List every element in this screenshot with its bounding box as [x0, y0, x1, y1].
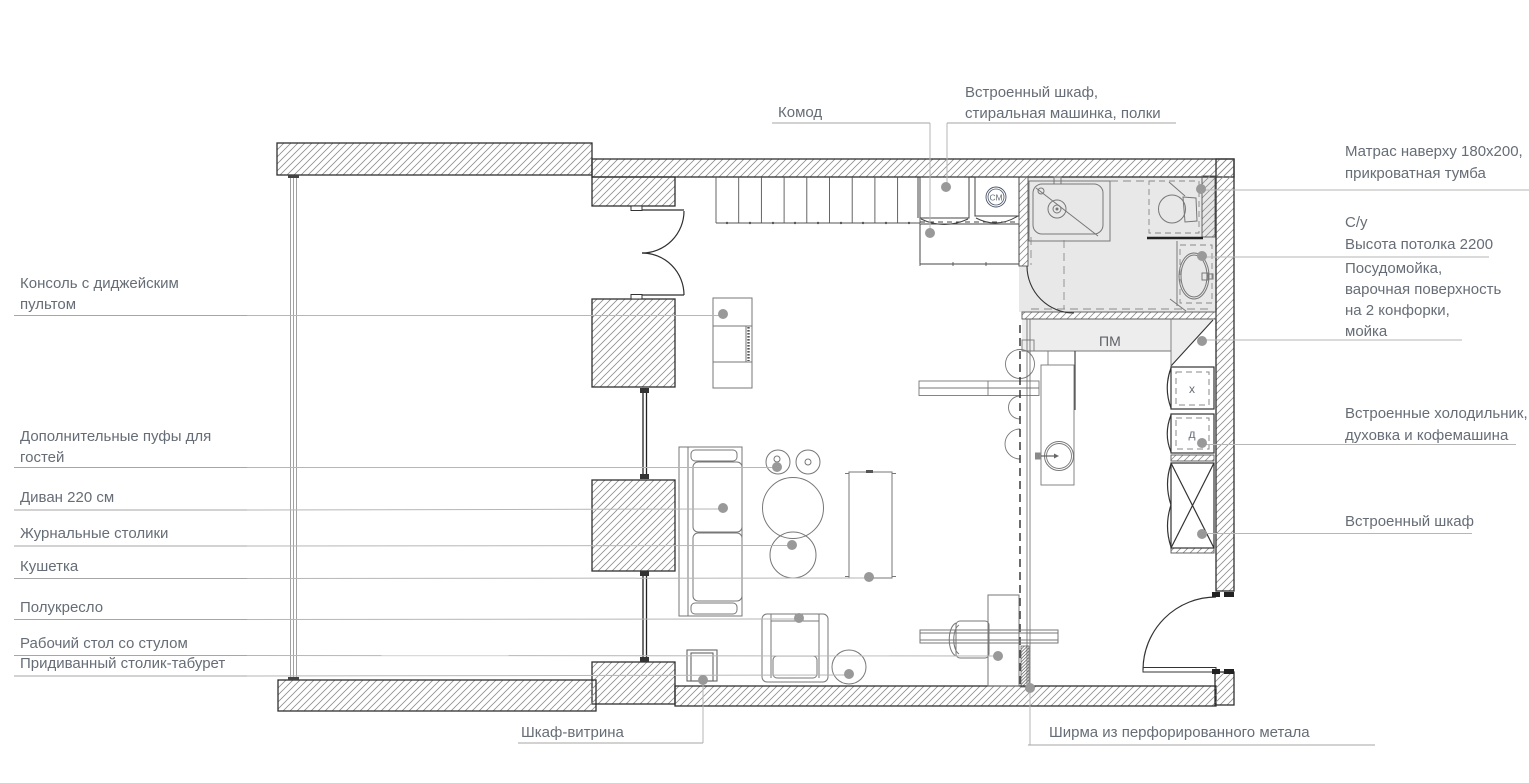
svg-text:прикроватная тумба: прикроватная тумба — [1345, 165, 1486, 182]
svg-text:Кушетка: Кушетка — [20, 558, 79, 575]
svg-text:Встроенные холодильник,: Встроенные холодильник, — [1345, 405, 1528, 422]
svg-text:Рабочий стол со стулом: Рабочий стол со стулом — [20, 635, 188, 652]
svg-text:Дополнительные пуфы для: Дополнительные пуфы для — [20, 428, 211, 445]
svg-text:Встроенный шкаф,: Встроенный шкаф, — [965, 84, 1098, 101]
svg-text:Полукресло: Полукресло — [20, 599, 103, 616]
svg-text:Встроенный шкаф: Встроенный шкаф — [1345, 513, 1474, 530]
svg-text:Журнальные столики: Журнальные столики — [20, 525, 168, 542]
svg-text:Комод: Комод — [778, 104, 822, 121]
svg-text:Ширма из перфорированного мета: Ширма из перфорированного метала — [1049, 724, 1310, 741]
svg-text:Консоль с диджейским: Консоль с диджейским — [20, 275, 179, 292]
svg-text:ПМ: ПМ — [1099, 333, 1121, 349]
svg-text:стиральная машинка, полки: стиральная машинка, полки — [965, 105, 1161, 122]
svg-text:С/у: С/у — [1345, 214, 1368, 231]
svg-text:Диван 220 см: Диван 220 см — [20, 489, 114, 506]
svg-text:пультом: пультом — [20, 296, 76, 313]
svg-text:Шкаф-витрина: Шкаф-витрина — [521, 724, 625, 741]
svg-text:варочная поверхность: варочная поверхность — [1345, 281, 1502, 298]
svg-text:Посудомойка,: Посудомойка, — [1345, 260, 1442, 277]
svg-text:Матрас наверху 180x200,: Матрас наверху 180x200, — [1345, 143, 1523, 160]
svg-text:на 2 конфорки,: на 2 конфорки, — [1345, 302, 1450, 319]
svg-text:духовка и кофемашина: духовка и кофемашина — [1345, 427, 1509, 444]
svg-text:х: х — [1189, 382, 1195, 396]
svg-text:СМ: СМ — [989, 193, 1002, 203]
svg-text:мойка: мойка — [1345, 323, 1388, 340]
svg-text:Придиванный столик-табурет: Придиванный столик-табурет — [20, 655, 225, 672]
svg-text:гостей: гостей — [20, 449, 64, 466]
svg-text:д: д — [1188, 427, 1195, 441]
svg-text:Высота потолка 2200: Высота потолка 2200 — [1345, 236, 1493, 253]
